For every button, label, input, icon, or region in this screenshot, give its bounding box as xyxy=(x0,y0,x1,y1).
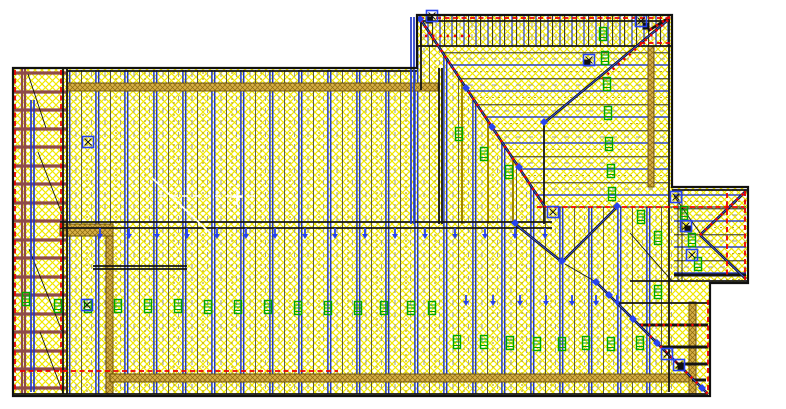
plan-layers xyxy=(13,11,748,397)
roof-plane-fills xyxy=(13,15,748,396)
roof-framing-plan xyxy=(0,0,786,409)
cad-canvas[interactable] xyxy=(0,0,786,409)
